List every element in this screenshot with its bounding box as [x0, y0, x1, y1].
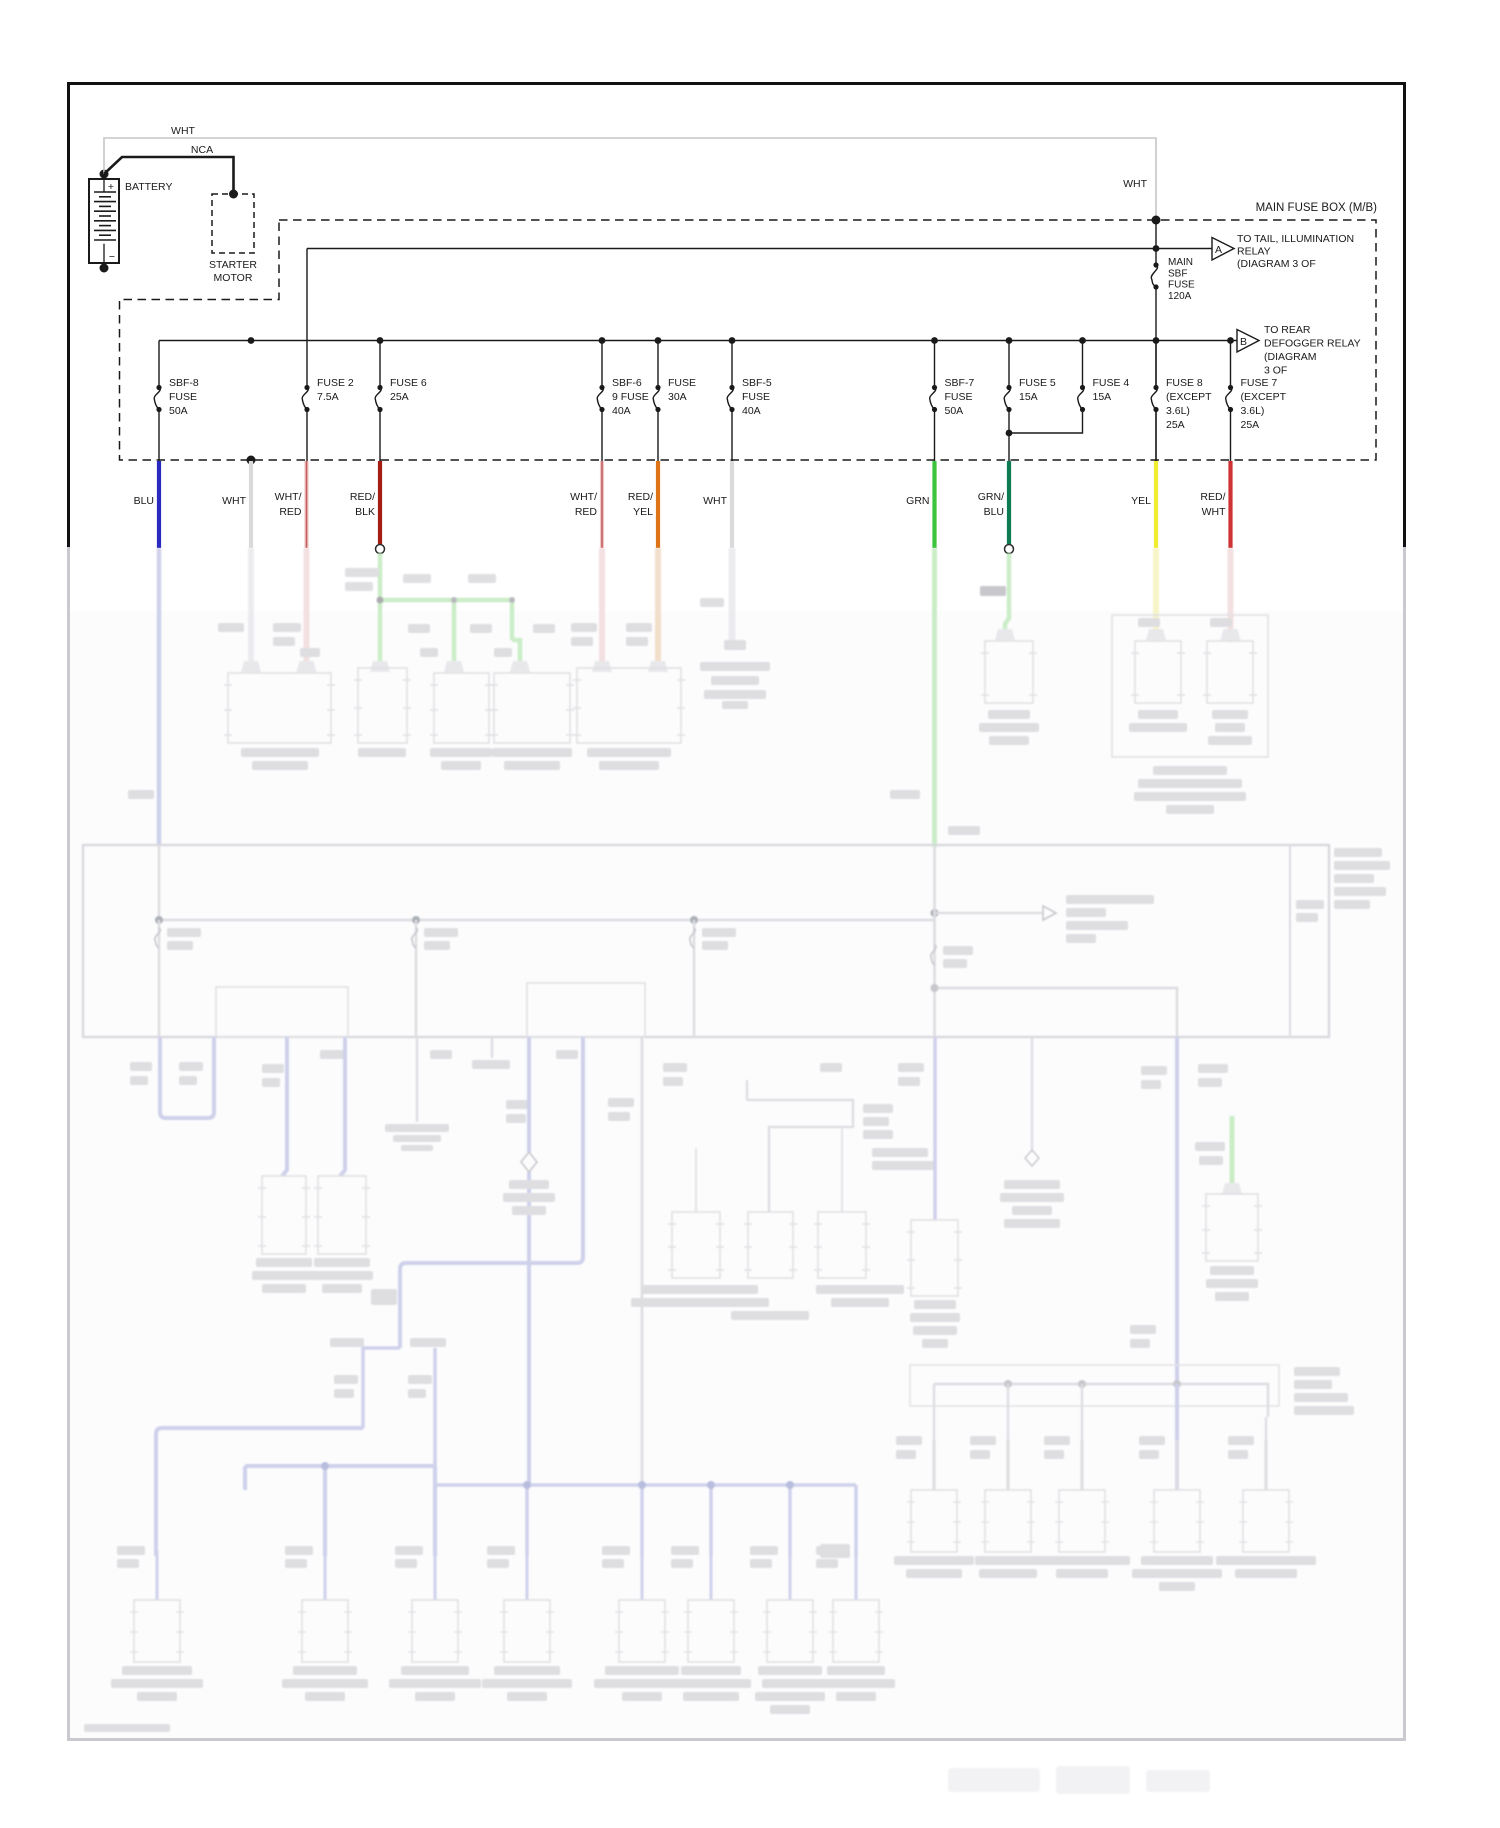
- svg-text:FUSE: FUSE: [742, 391, 770, 403]
- svg-text:(EXCEPT: (EXCEPT: [1241, 391, 1287, 403]
- svg-text:3.6L): 3.6L): [1166, 405, 1190, 417]
- svg-text:BLU: BLU: [984, 506, 1004, 518]
- svg-text:SBF: SBF: [1168, 268, 1187, 279]
- svg-text:−: −: [109, 251, 115, 263]
- svg-text:GRN: GRN: [906, 495, 929, 507]
- svg-text:RED/: RED/: [1200, 491, 1225, 503]
- svg-text:40A: 40A: [742, 405, 761, 417]
- svg-text:WHT: WHT: [171, 125, 195, 137]
- svg-text:FUSE 8: FUSE 8: [1166, 377, 1203, 389]
- svg-text:(DIAGRAM: (DIAGRAM: [1264, 351, 1317, 363]
- svg-text:BLU: BLU: [134, 495, 154, 507]
- svg-text:FUSE: FUSE: [945, 391, 973, 403]
- svg-text:WHT: WHT: [703, 495, 727, 507]
- svg-text:FUSE: FUSE: [1168, 280, 1195, 291]
- svg-text:SBF-6: SBF-6: [612, 377, 642, 389]
- svg-text:FUSE 4: FUSE 4: [1093, 377, 1130, 389]
- svg-text:(EXCEPT: (EXCEPT: [1166, 391, 1212, 403]
- svg-text:3 OF: 3 OF: [1264, 365, 1287, 377]
- svg-text:FUSE: FUSE: [169, 391, 197, 403]
- svg-text:TO REAR: TO REAR: [1264, 324, 1311, 336]
- svg-text:GRN/: GRN/: [978, 491, 1004, 503]
- svg-text:50A: 50A: [169, 405, 188, 417]
- svg-text:MAIN FUSE BOX (M/B): MAIN FUSE BOX (M/B): [1256, 202, 1378, 214]
- svg-text:30A: 30A: [668, 391, 687, 403]
- svg-text:DEFOGGER RELAY: DEFOGGER RELAY: [1264, 338, 1361, 350]
- svg-text:120A: 120A: [1168, 291, 1192, 302]
- svg-text:BATTERY: BATTERY: [125, 181, 172, 193]
- svg-text:FUSE 5: FUSE 5: [1019, 377, 1056, 389]
- svg-text:MOTOR: MOTOR: [214, 272, 253, 284]
- svg-text:A: A: [1215, 244, 1222, 256]
- svg-text:RELAY: RELAY: [1237, 246, 1271, 258]
- svg-text:(DIAGRAM 3 OF: (DIAGRAM 3 OF: [1237, 258, 1316, 270]
- svg-text:FUSE 6: FUSE 6: [390, 377, 427, 389]
- svg-text:WHT/: WHT/: [275, 491, 302, 503]
- svg-text:7.5A: 7.5A: [317, 391, 339, 403]
- svg-text:25A: 25A: [1241, 419, 1260, 431]
- svg-text:WHT: WHT: [1123, 178, 1147, 190]
- svg-text:MAIN: MAIN: [1168, 257, 1193, 268]
- svg-text:TO TAIL, ILLUMINATION: TO TAIL, ILLUMINATION: [1237, 233, 1354, 245]
- svg-text:SBF-5: SBF-5: [742, 377, 772, 389]
- svg-text:FUSE: FUSE: [668, 377, 696, 389]
- svg-text:WHT: WHT: [1202, 506, 1226, 518]
- svg-text:+: +: [108, 181, 114, 193]
- svg-text:9 FUSE: 9 FUSE: [612, 391, 649, 403]
- svg-text:SBF-7: SBF-7: [945, 377, 975, 389]
- svg-text:40A: 40A: [612, 405, 631, 417]
- svg-text:B: B: [1240, 336, 1247, 348]
- svg-text:15A: 15A: [1019, 391, 1038, 403]
- svg-text:25A: 25A: [390, 391, 409, 403]
- svg-text:RED: RED: [575, 506, 598, 518]
- svg-text:RED: RED: [279, 506, 302, 518]
- svg-text:YEL: YEL: [1131, 495, 1151, 507]
- svg-text:BLK: BLK: [355, 506, 375, 518]
- svg-text:WHT: WHT: [222, 495, 246, 507]
- svg-text:3.6L): 3.6L): [1241, 405, 1265, 417]
- svg-text:NCA: NCA: [191, 144, 213, 156]
- svg-text:WHT/: WHT/: [570, 491, 597, 503]
- svg-text:50A: 50A: [945, 405, 964, 417]
- svg-text:YEL: YEL: [633, 506, 653, 518]
- svg-text:STARTER: STARTER: [209, 259, 257, 271]
- svg-text:FUSE 2: FUSE 2: [317, 377, 354, 389]
- svg-text:RED/: RED/: [350, 491, 375, 503]
- svg-text:SBF-8: SBF-8: [169, 377, 199, 389]
- svg-text:25A: 25A: [1166, 419, 1185, 431]
- svg-text:FUSE 7: FUSE 7: [1241, 377, 1278, 389]
- svg-text:RED/: RED/: [628, 491, 653, 503]
- svg-text:15A: 15A: [1093, 391, 1112, 403]
